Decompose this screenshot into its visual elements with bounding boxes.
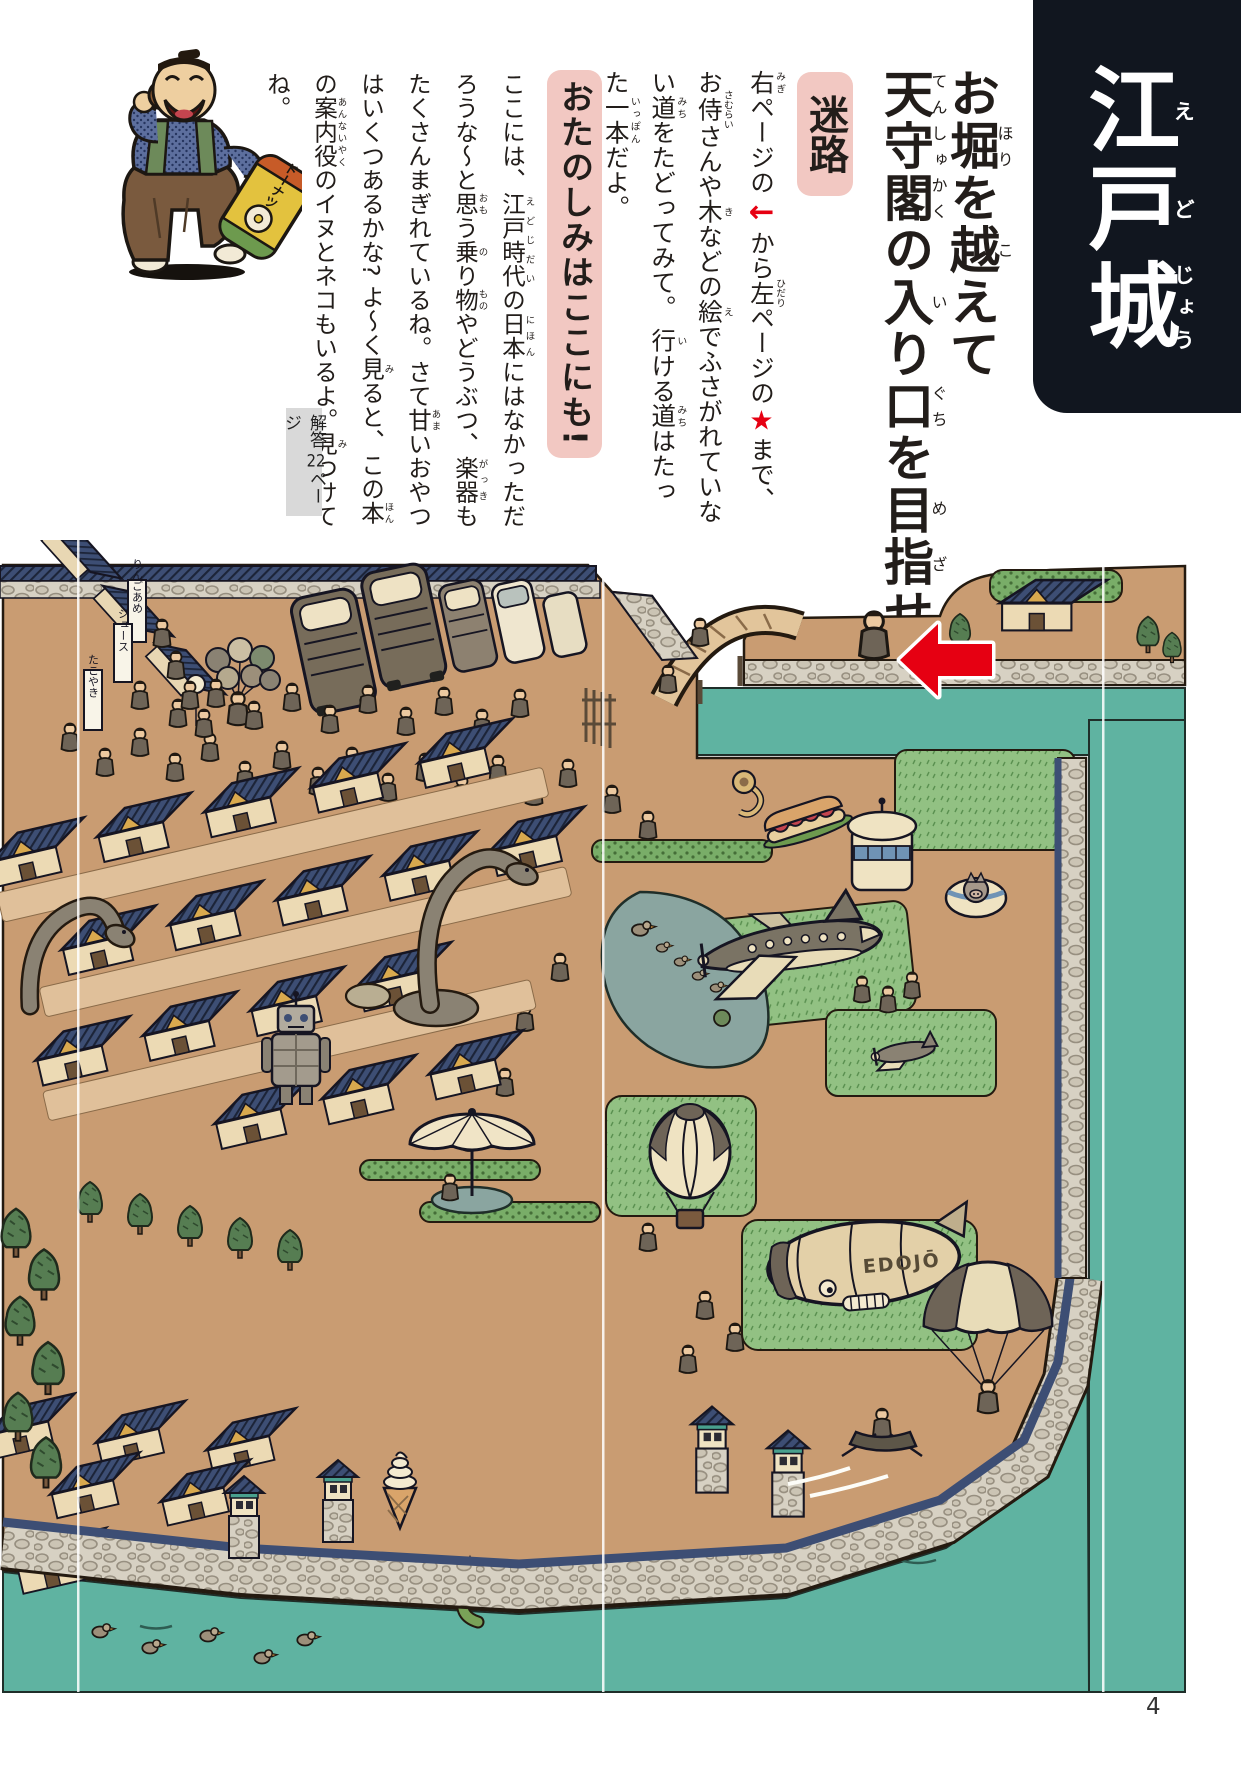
mascot-samurai-donut: ドーナツ — [62, 48, 302, 288]
stall-sign-text: たこやき — [87, 654, 100, 698]
entrance-samurai — [860, 612, 889, 659]
maze-label: 迷路 — [797, 72, 853, 196]
answer-note: 解答 22ページ — [286, 408, 322, 516]
page-number: 4 — [1146, 1694, 1161, 1720]
fun-label-text: おたのしみはここにも! — [551, 80, 599, 447]
watch-tower — [767, 1431, 809, 1517]
watch-tower — [224, 1476, 264, 1558]
stall-sign-text: ジュース — [117, 608, 130, 652]
answer-note-text: 解答 22ページ — [279, 414, 329, 516]
watch-tower — [691, 1407, 733, 1493]
book-page: 江え戸ど城じょう お堀ほりを越こえて天守閣てんしゅかくの入いり口ぐちを目指めざせ… — [0, 0, 1241, 1766]
stall-sign: ジュース — [114, 608, 132, 682]
chapter-title: 江え戸ど城じょう — [1080, 62, 1195, 413]
fun-label: おたのしみはここにも! — [547, 70, 602, 458]
maze-instructions: 右みぎページの←から左ひだりページの★まで、お侍さむらいさんや木きなどの絵えでふ… — [592, 70, 790, 528]
turtle — [714, 1010, 730, 1026]
maze-label-text: 迷路 — [796, 94, 854, 174]
watch-tower — [318, 1460, 358, 1542]
stall-sign-text: りんごあめ — [131, 558, 144, 613]
stall-sign: たこやき — [84, 654, 102, 730]
maze-illustration: りんごあめ ジュース たこやき — [0, 540, 1241, 1710]
dino-egg — [346, 984, 390, 1008]
chapter-banner: 江え戸ど城じょう — [1033, 0, 1241, 413]
